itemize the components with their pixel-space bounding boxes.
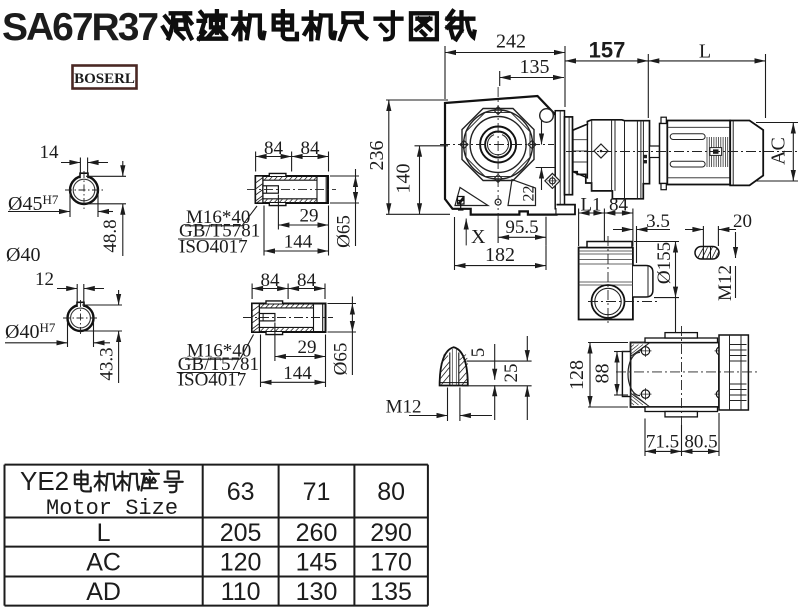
svg-text:80.5: 80.5 <box>684 432 717 453</box>
svg-text:20: 20 <box>733 211 752 232</box>
svg-text:135: 135 <box>520 56 550 78</box>
svg-text:84: 84 <box>301 138 321 159</box>
svg-text:84: 84 <box>609 195 629 216</box>
svg-text:182: 182 <box>485 244 515 266</box>
svg-text:22: 22 <box>521 186 538 202</box>
svg-text:29: 29 <box>298 337 317 358</box>
svg-text:Motor Size: Motor Size <box>46 496 178 521</box>
svg-text:14: 14 <box>40 142 60 163</box>
svg-text:ISO4017: ISO4017 <box>179 237 248 258</box>
svg-text:Ø40: Ø40 <box>6 244 40 266</box>
svg-text:140: 140 <box>393 164 415 194</box>
svg-text:144: 144 <box>283 363 312 384</box>
svg-text:25: 25 <box>501 364 522 383</box>
svg-text:29: 29 <box>300 206 319 227</box>
svg-text:84: 84 <box>261 270 281 291</box>
svg-text:135: 135 <box>370 578 412 606</box>
svg-text:95.5: 95.5 <box>505 217 538 238</box>
svg-text:71.5: 71.5 <box>646 432 679 453</box>
svg-text:80: 80 <box>377 478 405 506</box>
svg-text:L: L <box>699 41 711 63</box>
svg-text:BOSERL: BOSERL <box>74 71 135 87</box>
svg-text:236: 236 <box>366 141 388 171</box>
svg-text:128: 128 <box>566 360 588 390</box>
svg-text:145: 145 <box>296 549 338 577</box>
svg-text:43.3: 43.3 <box>97 347 118 380</box>
svg-text:290: 290 <box>370 519 412 547</box>
svg-text:L1: L1 <box>580 195 601 216</box>
svg-text:84: 84 <box>264 138 284 159</box>
svg-text:260: 260 <box>296 519 338 547</box>
svg-text:205: 205 <box>220 519 262 547</box>
svg-text:12: 12 <box>35 269 54 290</box>
svg-text:YE2: YE2 <box>20 466 69 496</box>
svg-text:130: 130 <box>296 578 338 606</box>
svg-text:M12: M12 <box>386 397 422 418</box>
svg-text:SA67R37: SA67R37 <box>2 6 157 49</box>
svg-text:157: 157 <box>589 38 626 63</box>
svg-text:Ø65: Ø65 <box>334 215 355 248</box>
svg-text:AC: AC <box>768 137 790 165</box>
svg-text:L: L <box>97 519 111 547</box>
svg-text:84: 84 <box>297 270 317 291</box>
svg-text:242: 242 <box>496 31 526 53</box>
svg-text:144: 144 <box>284 232 313 253</box>
svg-text:110: 110 <box>221 578 261 606</box>
svg-text:AD: AD <box>86 578 121 606</box>
svg-text:5: 5 <box>468 348 489 358</box>
svg-text:3.5: 3.5 <box>646 211 670 232</box>
svg-text:120: 120 <box>220 549 262 577</box>
svg-text:M12: M12 <box>715 265 736 301</box>
svg-text:48.8: 48.8 <box>100 219 121 252</box>
svg-text:71: 71 <box>303 478 331 506</box>
svg-text:88: 88 <box>592 364 614 384</box>
svg-text:X: X <box>471 226 486 248</box>
svg-text:Ø65: Ø65 <box>331 343 352 376</box>
svg-text:Ø155: Ø155 <box>654 242 675 284</box>
svg-text:63: 63 <box>227 478 255 506</box>
svg-text:170: 170 <box>370 549 412 577</box>
svg-text:AC: AC <box>86 549 121 577</box>
